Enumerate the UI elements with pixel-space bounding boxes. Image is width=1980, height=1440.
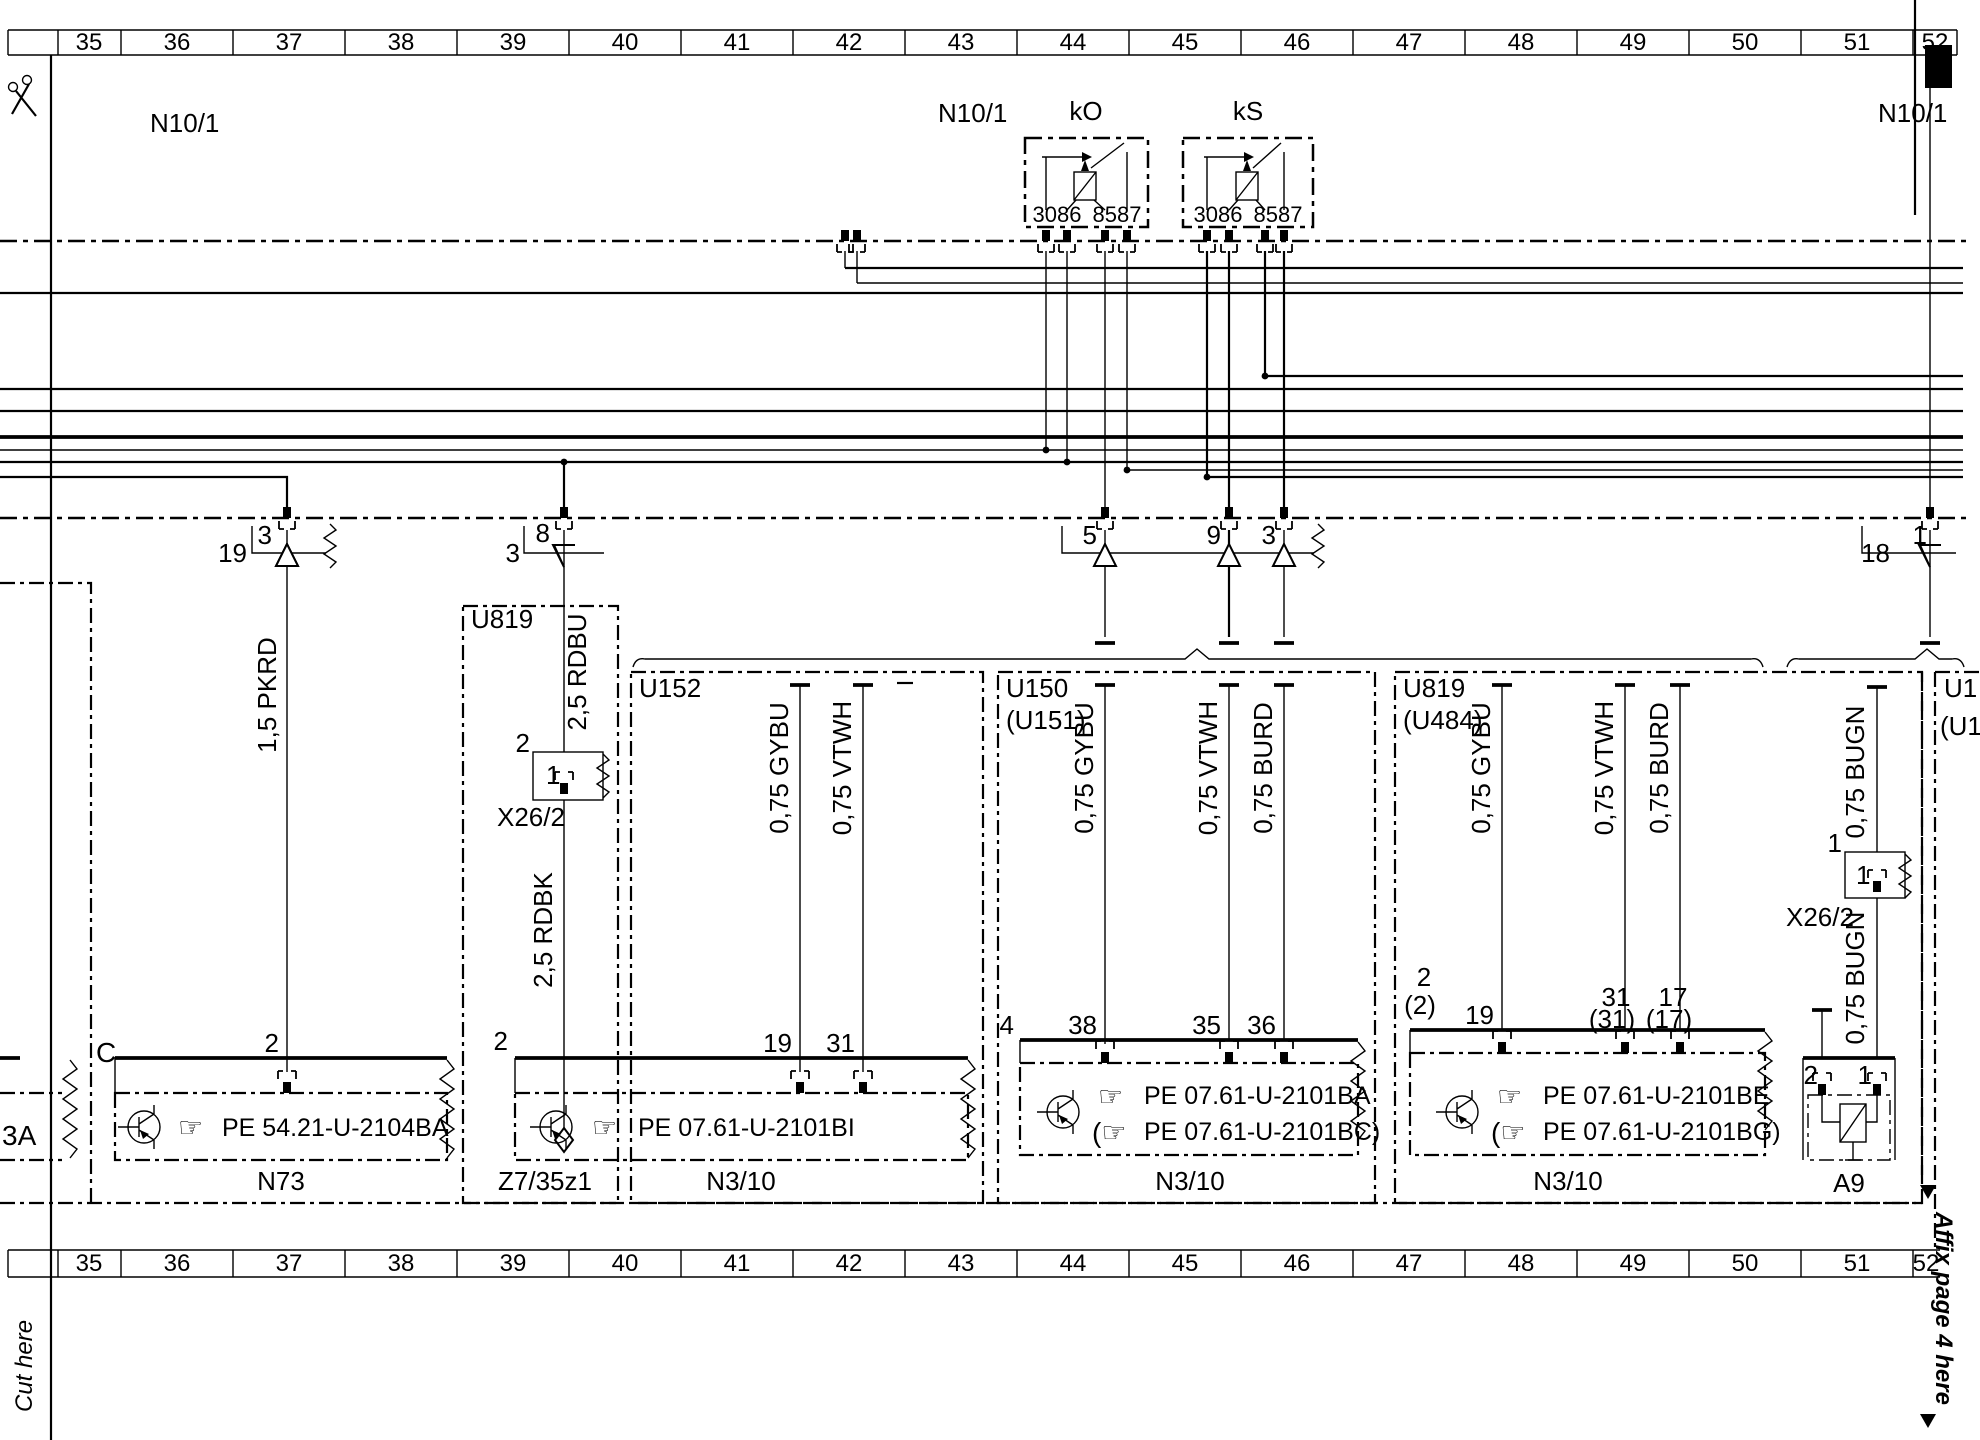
component-cut-left: 3A <box>0 1058 77 1160</box>
n310b-pin35-label: 35 <box>1192 1010 1221 1040</box>
harness-wires: 0,75 GYBU 0,75 VTWH 0,75 GYBU 0,75 VTWH … <box>764 685 1887 1058</box>
wire-label-gybu: 0,75 GYBU <box>764 702 794 834</box>
pointing-hand-paren-icon: (☞ <box>1491 1117 1525 1148</box>
n310c-pin2-label: 2 <box>1417 962 1431 992</box>
relay-ks: kS 3086 8587 <box>1183 96 1313 227</box>
ruler-cell: 42 <box>836 1250 863 1277</box>
n310c-pin31p-label: (31) <box>1589 1004 1635 1034</box>
bus-lines <box>0 268 1963 508</box>
wire-label-rdbk: 2,5 RDBK <box>528 872 558 988</box>
pin-18-label: 18 <box>1861 538 1890 568</box>
n310a-pin31-label: 31 <box>826 1028 855 1058</box>
x26r-pin1-outer-label: 1 <box>1828 828 1842 858</box>
ruler-cell: 50 <box>1732 1250 1759 1277</box>
scissors-icon <box>9 76 37 117</box>
a9-pin2-label: 2 <box>1804 1060 1818 1090</box>
relay-ks-pins-right: 8587 <box>1254 202 1303 227</box>
pointing-hand-icon: ☞ <box>1098 1081 1123 1112</box>
n310c-label: N3/10 <box>1533 1166 1602 1196</box>
n310a-pin19-label: 19 <box>763 1028 792 1058</box>
n310a-pe-ref: PE 07.61-U-2101BI <box>638 1114 855 1142</box>
ruler-cell: 47 <box>1396 1250 1423 1277</box>
relay-ks-pins-left: 3086 <box>1194 202 1243 227</box>
box-u152-label: U152 <box>639 673 701 703</box>
relay-border-connectors <box>837 230 1292 252</box>
unit-label-n10-left: N10/1 <box>150 108 219 138</box>
component-n310-b: 4 38 35 36 ☞ PE 07.61-U-2101BA (☞ PE 07.… <box>1000 1010 1381 1196</box>
ruler-cell: 39 <box>500 1250 527 1277</box>
box-edge-u1b-label: (U1 <box>1940 711 1980 741</box>
wire-label-vtwh: 0,75 VTWH <box>1193 701 1223 835</box>
n73-pin2-label: 2 <box>265 1028 279 1058</box>
ruler-cell: 49 <box>1620 1250 1647 1277</box>
relay-ko: kO 3086 8587 <box>1025 96 1148 227</box>
ruler-cell: 44 <box>1060 29 1087 56</box>
component-n73: 2 ☞ PE 54.21-U-2104BA N73 <box>115 1028 454 1196</box>
wire-label-pkrd: 1,5 PKRD <box>252 637 282 753</box>
wire-label-bugn: 0,75 BUGN <box>1840 706 1870 839</box>
schematic-canvas: 35 36 37 38 39 40 41 42 43 44 45 46 47 4… <box>0 0 1980 1440</box>
ruler-cell: 44 <box>1060 1250 1087 1277</box>
pin-3-label: 3 <box>258 520 272 550</box>
box-u819-right-label: U819 <box>1403 673 1465 703</box>
box-c-region: C <box>0 583 1922 1203</box>
ruler-cell: 49 <box>1620 29 1647 56</box>
ruler-cell: 39 <box>500 29 527 56</box>
pointing-hand-icon: ☞ <box>592 1112 617 1143</box>
x26r-pin1-label: 1 <box>1856 860 1870 890</box>
ruler-cell: 37 <box>276 1250 303 1277</box>
down-triangle-icon <box>1920 1414 1936 1428</box>
n310c-pe-ref-1: PE 07.61-U-2101BE <box>1543 1082 1770 1110</box>
ruler-cell: 37 <box>276 29 303 56</box>
n73-label: N73 <box>257 1166 305 1196</box>
cut-here-label: Cut here <box>11 1320 38 1412</box>
component-n310-c: 2 (2) 19 31 (31) 17 (17) ☞ PE 07.61-U-21… <box>1404 962 1781 1196</box>
x26-left-label: X26/2 <box>497 802 565 832</box>
cut-margin-left: Cut here <box>9 55 52 1440</box>
relay-ko-pins-right: 8587 <box>1093 202 1142 227</box>
wire-label-rdbu: 2,5 RDBU <box>562 613 592 730</box>
relay-ko-label: kO <box>1069 96 1102 126</box>
a9-pin1-label: 1 <box>1858 1060 1872 1090</box>
x26-right-label: X26/2 <box>1786 902 1854 932</box>
ruler-cell: 38 <box>388 29 415 56</box>
n310b-label: N3/10 <box>1155 1166 1224 1196</box>
ground-diamond-icon <box>555 1128 573 1152</box>
pointing-hand-icon: ☞ <box>178 1112 203 1143</box>
wire-label-vtwh: 0,75 VTWH <box>827 701 857 835</box>
n310c-pe-ref-2: PE 07.61-U-2101BG) <box>1543 1118 1781 1146</box>
ruler-cell: 40 <box>612 29 639 56</box>
top-ruler: 35 36 37 38 39 40 41 42 43 44 45 46 47 4… <box>8 29 1957 56</box>
vertical-wires <box>561 88 1930 508</box>
page-edge-block <box>1925 45 1952 88</box>
ruler-cell: 50 <box>1732 29 1759 56</box>
ruler-cell: 45 <box>1172 29 1199 56</box>
ruler-cell: 48 <box>1508 29 1535 56</box>
n310a-label: N3/10 <box>706 1166 775 1196</box>
ruler-cell: 40 <box>612 1250 639 1277</box>
n310c-pin17p-label: (17) <box>1646 1004 1692 1034</box>
x26-pin1-label: 1 <box>546 760 560 790</box>
harness-braces <box>633 649 1964 667</box>
relay-ks-label: kS <box>1233 96 1263 126</box>
ruler-cell: 46 <box>1284 1250 1311 1277</box>
ruler-cell: 48 <box>1508 1250 1535 1277</box>
ruler-cell: 41 <box>724 1250 751 1277</box>
box-page-edge: U1 (U1 <box>1935 672 1980 741</box>
wiring-diagram-page: 35 36 37 38 39 40 41 42 43 44 45 46 47 4… <box>0 0 1980 1440</box>
wire-label-gybu: 0,75 GYBU <box>1069 702 1099 834</box>
ruler-cell: 38 <box>388 1250 415 1277</box>
relay-ko-pins-left: 3086 <box>1033 202 1082 227</box>
ruler-cell: 51 <box>1844 1250 1871 1277</box>
n310b-pe-ref-1: PE 07.61-U-2101BA <box>1144 1082 1371 1110</box>
ruler-cell: 51 <box>1844 29 1871 56</box>
ruler-cell: 36 <box>164 1250 191 1277</box>
ruler-cell: 42 <box>836 29 863 56</box>
box-edge-u1-label: U1 <box>1944 673 1977 703</box>
n310b-pin36-label: 36 <box>1247 1010 1276 1040</box>
a9-label: A9 <box>1833 1168 1865 1198</box>
box-u150-label: U150 <box>1006 673 1068 703</box>
ruler-cell: 41 <box>724 29 751 56</box>
ruler-cell: 47 <box>1396 29 1423 56</box>
pin-3-outer-label: 3 <box>506 538 520 568</box>
z7-label: Z7/35z1 <box>498 1166 592 1196</box>
pin-3r-label: 3 <box>1262 520 1276 550</box>
x26-pin2-label: 2 <box>516 728 530 758</box>
n310b-left-pin-label: 4 <box>1000 1010 1014 1040</box>
box-u819-left-label: U819 <box>471 604 533 634</box>
n310b-pin38-label: 38 <box>1068 1010 1097 1040</box>
pin-9-label: 9 <box>1207 520 1221 550</box>
wire-label-vtwh: 0,75 VTWH <box>1589 701 1619 835</box>
pin-19-label: 19 <box>218 538 247 568</box>
ruler-cell: 43 <box>948 29 975 56</box>
ruler-cell: 35 <box>76 1250 103 1277</box>
n310a-left-pin-label: 2 <box>494 1026 508 1056</box>
wire-label-burd: 0,75 BURD <box>1248 702 1278 834</box>
affix-page-label: Affix page 4 here <box>1930 1211 1957 1405</box>
n310c-pin2p-label: (2) <box>1404 990 1436 1020</box>
n73-pe-ref: PE 54.21-U-2104BA <box>222 1114 449 1142</box>
unit-label-n10-right: N10/1 <box>1878 98 1947 128</box>
ruler-cell: 43 <box>948 1250 975 1277</box>
box-c-label: C <box>96 1037 116 1068</box>
ruler-cell: 52 <box>1913 1250 1940 1277</box>
ruler-cell: 46 <box>1284 29 1311 56</box>
wire-label-burd: 0,75 BURD <box>1644 702 1674 834</box>
ruler-cell: 36 <box>164 29 191 56</box>
bottom-ruler: 35 36 37 38 39 40 41 42 43 44 45 46 47 4… <box>8 1250 1940 1277</box>
pin-5-label: 5 <box>1083 520 1097 550</box>
wire-label-gybu: 0,75 GYBU <box>1466 702 1496 834</box>
cut-component-label: 3A <box>2 1120 37 1151</box>
unit-label-n10-mid: N10/1 <box>938 98 1007 128</box>
pointing-hand-paren-icon: (☞ <box>1092 1117 1126 1148</box>
ruler-cell: 45 <box>1172 1250 1199 1277</box>
n310b-pe-ref-2: PE 07.61-U-2101BC) <box>1144 1118 1380 1146</box>
n310c-pin19-label: 19 <box>1465 1000 1494 1030</box>
connector-x26-2-right: 1 1 X26/2 <box>1786 828 1911 932</box>
pointing-hand-icon: ☞ <box>1497 1081 1522 1112</box>
pin-8-label: 8 <box>536 518 550 548</box>
ruler-cell: 35 <box>76 29 103 56</box>
